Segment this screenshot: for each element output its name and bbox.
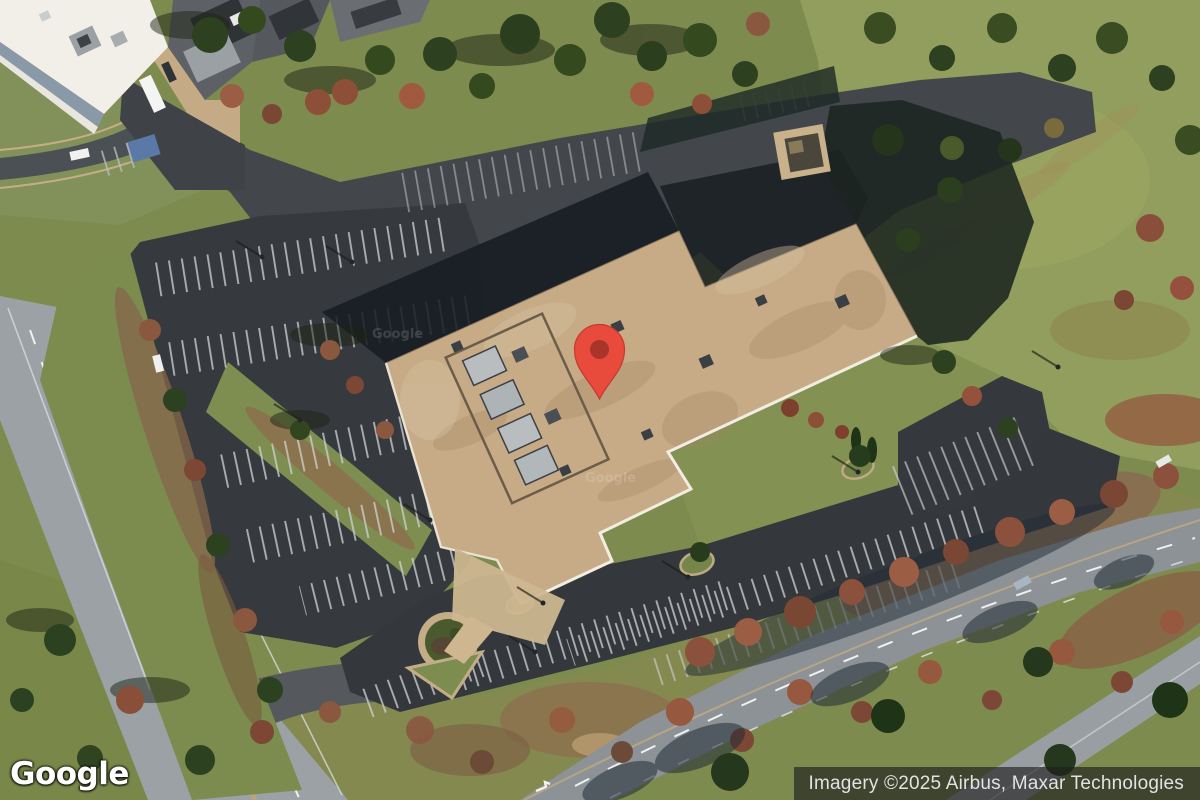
pin-inner-circle — [590, 340, 609, 359]
imagery-attribution: Imagery ©2025 Airbus, Maxar Technologies — [794, 767, 1200, 800]
google-logo[interactable]: Google — [10, 756, 129, 792]
attribution-text: Imagery ©2025 Airbus, Maxar Technologies — [809, 773, 1184, 795]
tile-watermark-text: Google — [585, 471, 636, 486]
map-viewport: Google Google Google Imagery ©2025 Airbu… — [0, 0, 1200, 800]
satellite-map-canvas[interactable]: Google Google — [0, 0, 1200, 800]
tile-watermark-text: Google — [372, 327, 423, 342]
dumpster-enclosure — [773, 124, 831, 180]
